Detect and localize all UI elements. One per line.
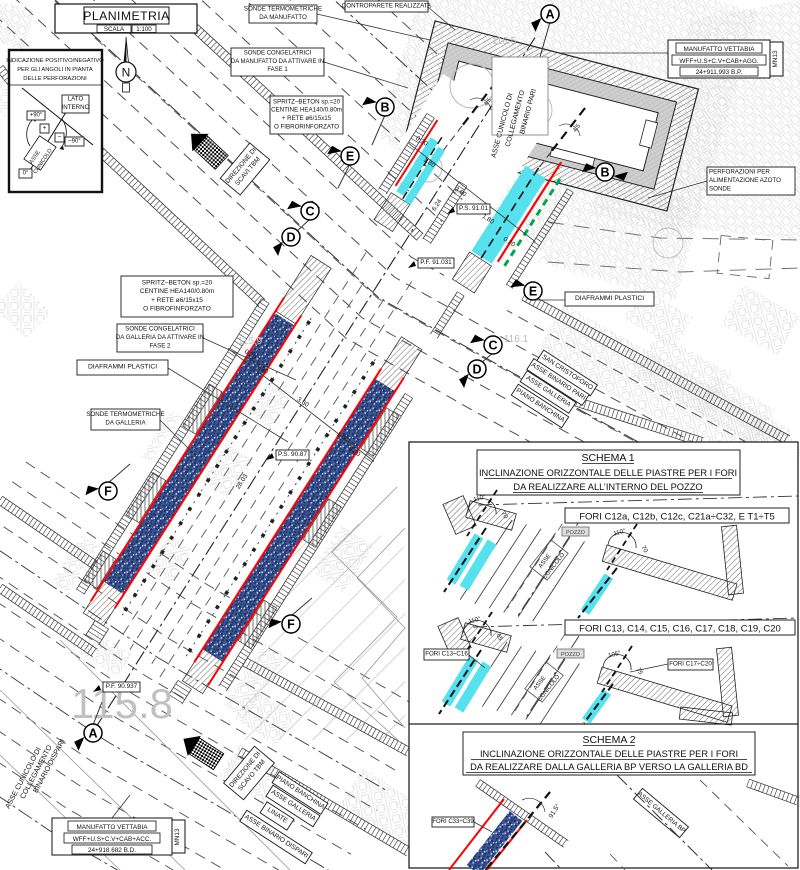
svg-text:115.9: 115.9 [238, 336, 263, 347]
svg-text:F: F [287, 617, 295, 631]
svg-text:P.F. 91.031: P.F. 91.031 [420, 259, 452, 266]
svg-text:FORI C13, C14, C15, C16, C17,: FORI C13, C14, C15, C16, C17, C18, C19, … [579, 624, 781, 635]
svg-text:MANUFATTO VETTABIA: MANUFATTO VETTABIA [76, 824, 148, 831]
svg-text:N: N [122, 66, 131, 80]
svg-text:SPRITZ–BETON sp.=20: SPRITZ–BETON sp.=20 [142, 279, 213, 286]
svg-text:INDICAZIONE POSITIVO/NEGATIVO: INDICAZIONE POSITIVO/NEGATIVO [6, 58, 104, 64]
svg-text:FORI C12a, C12b, C12c, C21a÷C3: FORI C12a, C12b, C12c, C21a÷C32, E T1÷T5 [579, 512, 775, 523]
svg-text:SCALA: SCALA [104, 26, 125, 33]
svg-text:FORI C13÷C16: FORI C13÷C16 [425, 650, 468, 657]
svg-text:116.1: 116.1 [504, 334, 529, 345]
svg-text:+90°: +90° [30, 112, 43, 118]
svg-text:WFF+U.S+C.V+CAB+ACC.: WFF+U.S+C.V+CAB+ACC. [73, 836, 152, 843]
svg-text:–90°: –90° [68, 138, 81, 144]
svg-text:24+911.993 B.P.: 24+911.993 B.P. [696, 69, 743, 76]
svg-text:P.S. 91.01: P.S. 91.01 [459, 205, 488, 212]
svg-text:POZZO: POZZO [566, 530, 586, 536]
svg-text:F: F [104, 484, 112, 498]
svg-text:DA REALIZZARE ALL’INTERNO DEL: DA REALIZZARE ALL’INTERNO DEL POZZO [513, 482, 702, 492]
svg-text:CENTINE HEA140/0.80m: CENTINE HEA140/0.80m [271, 107, 342, 114]
svg-text:24+918.682 B.D.: 24+918.682 B.D. [88, 847, 136, 854]
svg-text:MN13: MN13 [174, 828, 181, 845]
svg-text:+ RETE ø6/15x15: + RETE ø6/15x15 [282, 115, 332, 122]
svg-text:PLANIMETRIA: PLANIMETRIA [83, 9, 170, 23]
svg-text:A: A [88, 726, 97, 740]
svg-text:D: D [472, 362, 481, 376]
svg-text:D: D [286, 230, 295, 244]
svg-text:POZZO: POZZO [561, 652, 581, 658]
svg-text:INCLINAZIONE ORIZZONTALE DELLE: INCLINAZIONE ORIZZONTALE DELLE PIASTRE P… [480, 749, 738, 759]
svg-text:DA GALLERIA DA ATTIVARE IN: DA GALLERIA DA ATTIVARE IN [116, 334, 205, 341]
svg-text:CONTROPARETE REALIZZATA: CONTROPARETE REALIZZATA [342, 2, 432, 9]
svg-text:INTERNO: INTERNO [62, 104, 90, 111]
svg-text:+: + [43, 125, 47, 132]
svg-text:DIAFRAMMI PLASTICI: DIAFRAMMI PLASTICI [88, 364, 157, 371]
svg-text:DA GALLERIA: DA GALLERIA [105, 420, 146, 427]
svg-text:DA MANUFATTO: DA MANUFATTO [259, 14, 307, 21]
svg-text:LATO: LATO [68, 96, 84, 103]
svg-text:E: E [529, 284, 537, 298]
svg-text:INCLINAZIONE ORIZZONTALE DELLE: INCLINAZIONE ORIZZONTALE DELLE PIASTRE P… [479, 468, 737, 478]
svg-text:FASE 1: FASE 1 [267, 67, 288, 73]
svg-text:PERFORAZIONI PER: PERFORAZIONI PER [709, 169, 770, 176]
svg-text:P.S. 90.87: P.S. 90.87 [278, 451, 307, 458]
svg-text:0°: 0° [23, 170, 29, 176]
svg-text:PER GLI ANGOLI IN PIANTA: PER GLI ANGOLI IN PIANTA [17, 67, 93, 73]
svg-text:CENTINE HEA140/0.80m: CENTINE HEA140/0.80m [140, 288, 214, 295]
svg-text:O FIBRORINFORZATO: O FIBRORINFORZATO [274, 124, 339, 131]
svg-text:MN13: MN13 [772, 50, 779, 67]
svg-text:SPRITZ–BETON sp.=20: SPRITZ–BETON sp.=20 [273, 98, 341, 105]
svg-text:SONDE CONGELATRICI: SONDE CONGELATRICI [244, 51, 312, 57]
svg-text:WFF+U.S+C.V+CAB+AGG.: WFF+U.S+C.V+CAB+AGG. [679, 58, 758, 65]
svg-text:DIAFRAMMI PLASTICI: DIAFRAMMI PLASTICI [575, 295, 644, 302]
svg-text:A: A [545, 7, 554, 21]
svg-text:–: – [58, 134, 62, 141]
svg-text:E: E [346, 149, 354, 163]
svg-text:SONDE: SONDE [709, 185, 731, 192]
svg-text:SONDE CONGELATRICI: SONDE CONGELATRICI [125, 326, 195, 333]
svg-text:MANUFATTO VETTABIA: MANUFATTO VETTABIA [683, 46, 755, 53]
svg-text:C: C [305, 204, 314, 218]
svg-text:B: B [380, 100, 389, 114]
svg-text:1:100: 1:100 [136, 26, 152, 33]
svg-text:P.F. 90.937: P.F. 90.937 [106, 683, 138, 690]
svg-text:FORI C33÷C39: FORI C33÷C39 [432, 819, 474, 825]
svg-text:SCHEMA 2: SCHEMA 2 [582, 734, 635, 746]
svg-text:+ RETE ø6/15x15: + RETE ø6/15x15 [151, 297, 203, 304]
svg-text:O FIBROFINFORZATO: O FIBROFINFORZATO [143, 306, 211, 313]
svg-text:SONDE TERMOMETRICHE: SONDE TERMOMETRICHE [86, 411, 164, 418]
svg-text:B: B [600, 165, 609, 179]
svg-text:SONDE TERMOMETRICHE: SONDE TERMOMETRICHE [244, 6, 322, 13]
svg-text:116.5: 116.5 [492, 36, 517, 47]
svg-text:DA MANUFATTO DA ATTIVARE IN: DA MANUFATTO DA ATTIVARE IN [231, 59, 324, 65]
svg-text:SCHEMA 1: SCHEMA 1 [581, 452, 634, 464]
svg-text:FORI C17÷C20: FORI C17÷C20 [669, 660, 712, 667]
svg-text:DA REALIZZARE DALLA GALLERIA B: DA REALIZZARE DALLA GALLERIA BP VERSO LA… [470, 762, 748, 772]
svg-text:DELLE PERFORAZIONI: DELLE PERFORAZIONI [23, 76, 87, 82]
svg-text:ALIMENTAZIONE AZOTO: ALIMENTAZIONE AZOTO [709, 177, 781, 184]
svg-text:C: C [488, 338, 497, 352]
svg-text:FASE 2: FASE 2 [150, 342, 172, 349]
